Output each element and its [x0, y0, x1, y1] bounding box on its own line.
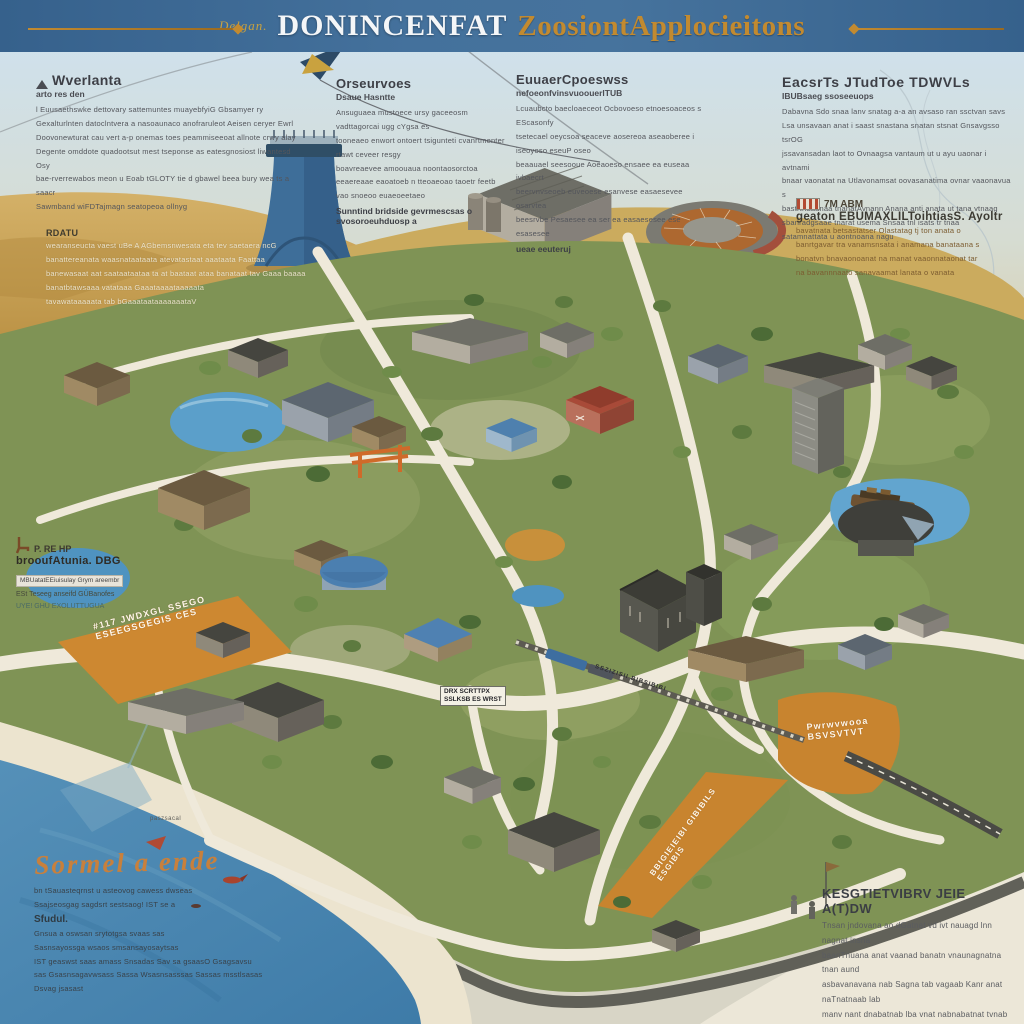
striped-flag-icon	[796, 198, 820, 210]
annotation-body: Ansuguaea mustoece ursy gaceeosm vadttag…	[336, 106, 508, 203]
diamond-finial-icon	[848, 23, 859, 34]
pond	[170, 392, 286, 452]
orange-field-right	[778, 692, 900, 794]
annotation-heading: brooufAtunia. DBG	[16, 555, 190, 567]
gold-rule-left	[28, 28, 238, 30]
annotation-subheading: IBUBsaeg ssoseeuops	[782, 91, 1012, 101]
annotation-tag: P. RE HP	[34, 544, 71, 554]
annotation-footer: Sunntind bridside gevrmescsas o svosoroe…	[336, 206, 508, 226]
annotation-heading: RDATU	[46, 228, 330, 238]
annotation-left-hill: RDATU wearanseucta vaest uBe A AGbemsnwe…	[46, 228, 330, 308]
annotation-body: bavatnata betsastatser Olastatag tj ton …	[796, 224, 1012, 280]
annotation-mid-left: P. RE HP brooufAtunia. DBG MBUatatEEiuis…	[16, 536, 190, 613]
annotation-heading: Orseurvoes	[336, 76, 508, 91]
chair-icon	[16, 536, 30, 554]
high-rise	[792, 378, 844, 474]
annotation-bottom-left: Sormel a ende bn tSauasteqrnst u asteovo…	[34, 850, 454, 996]
annotation-heading: Wverlanta	[52, 72, 122, 88]
title-script-word: Delgan.	[219, 18, 268, 34]
poster: Delgan. DONINCENFAT ZoosiontApplocieiton…	[0, 0, 1024, 1024]
poster-subtitle: ZoosiontApplocieitons	[517, 10, 805, 43]
annotation-subheading: Dsaue Hasntte	[336, 92, 508, 102]
annotation-line: ESt Teseeg anseifd GÜBanofes	[16, 589, 190, 601]
annotation-heading: geaton EBUMAXLILToihtiasS. Ayoltr	[796, 211, 1012, 223]
annotation-top-mid-left: Orseurvoes Dsaue Hasntte Ansuguaea musto…	[336, 76, 508, 235]
annotation-tag: 7M ABM	[824, 199, 863, 210]
annotation-body: wearanseucta vaest uBe A AGbemsnwesata e…	[46, 239, 330, 308]
annotation-right-hill: 7M ABM geaton EBUMAXLILToihtiasS. Ayoltr…	[796, 198, 1012, 280]
annotation-body: Gnsua a oswsan srytotgsa svaas sas Sasns…	[34, 927, 454, 955]
title-banner: Delgan. DONINCENFAT ZoosiontApplocieiton…	[0, 0, 1024, 52]
annotation-heading: EacsrTs JTudToe TDWVLs	[782, 74, 1012, 90]
blue-dome-building	[320, 556, 388, 590]
road-label-chip: DRX SCRTTPX SSLKSB ES WRST	[440, 686, 506, 706]
annotation-body: IST geaswst saas amass Snsadas Sav sa gs…	[34, 955, 454, 997]
annotation-midline: Sfudul.	[34, 914, 454, 925]
annotation-heading: KESGTIETVIBRV JEIE A(T)DW	[822, 886, 1018, 916]
annotation-bottom-right: KESGTIETVIBRV JEIE A(T)DW Tnsan jndovana…	[822, 886, 1018, 1024]
small-pond	[512, 585, 564, 607]
annotation-body: l Euusaethswke dettovary sattemuntes mua…	[36, 103, 306, 214]
annotation-heading: EuuaerCpoeswss	[516, 72, 702, 87]
annotation-subheading: nefoeonfvinsvuoouerlTUB	[516, 88, 702, 98]
annotation-footer: ueae eeuteruj	[516, 244, 702, 254]
annotation-body: Tnsan jndovana ao dGatnat vd ivt nauagd …	[822, 919, 1018, 1024]
annotation-subheading: arto res den	[36, 89, 306, 99]
beach-label: paszsacal	[150, 816, 181, 822]
poster-title: DONINCENFAT	[277, 9, 507, 43]
annotation-body: bn tSauasteqrnst u asteovog cawess dwsea…	[34, 884, 454, 912]
mountain-logo-icon	[36, 80, 48, 89]
gold-rule-right	[854, 28, 1004, 30]
annotation-body: Lcuaubcto baecloaeceot Ocbovoeso etnoeso…	[516, 102, 702, 241]
annotation-top-mid: EuuaerCpoeswss nefoeonfvinsvuoouerlTUB L…	[516, 72, 702, 262]
annotation-box-line: MBUatatEEiuisulay Grym areembr	[16, 575, 123, 587]
annotation-top-left: Wverlanta arto res den l Euusaethswke de…	[36, 72, 306, 214]
